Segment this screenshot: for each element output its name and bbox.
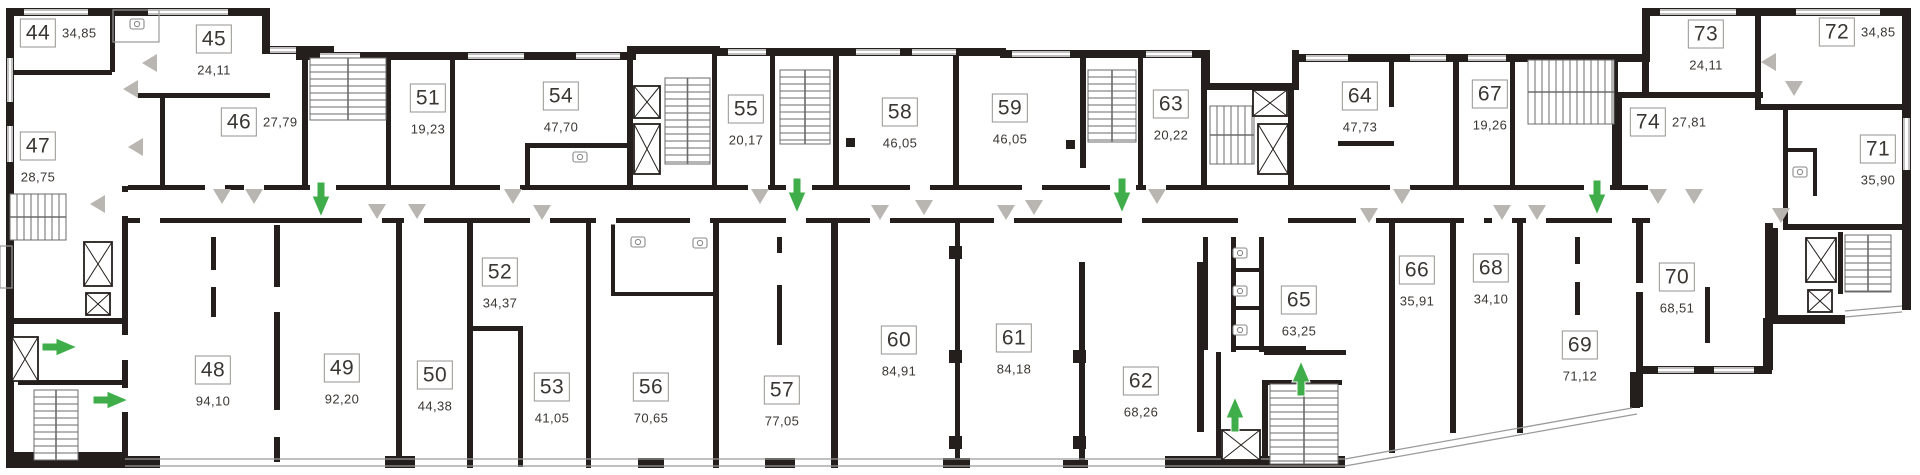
unit-number: 70 bbox=[1659, 263, 1695, 292]
unit-number: 66 bbox=[1399, 256, 1435, 285]
unit-area: 24,11 bbox=[1689, 58, 1723, 73]
unit-area: 92,20 bbox=[325, 392, 360, 407]
unit-area: 41,05 bbox=[535, 411, 570, 426]
unit-number: 59 bbox=[992, 94, 1028, 123]
unit-number: 44 bbox=[20, 19, 56, 48]
unit-number: 71 bbox=[1860, 135, 1896, 164]
unit-number: 55 bbox=[728, 95, 764, 124]
unit-area: 34,85 bbox=[1861, 25, 1896, 40]
unit-area: 71,12 bbox=[1563, 369, 1598, 384]
unit-number: 61 bbox=[996, 324, 1032, 353]
floor-plan: 4434,854524,114627,794728,754894,104992,… bbox=[0, 0, 1920, 475]
unit-number: 47 bbox=[20, 132, 56, 161]
unit-area: 35,90 bbox=[1861, 173, 1896, 188]
unit-number: 58 bbox=[882, 98, 918, 127]
unit-area: 46,05 bbox=[883, 136, 918, 151]
unit-number: 54 bbox=[543, 82, 579, 111]
unit-area: 24,11 bbox=[197, 63, 231, 78]
unit-number: 50 bbox=[417, 361, 453, 390]
unit-area: 84,18 bbox=[997, 362, 1032, 377]
unit-area: 34,10 bbox=[1474, 292, 1509, 307]
unit-area: 19,23 bbox=[411, 122, 446, 137]
unit-area: 68,26 bbox=[1124, 405, 1159, 420]
unit-number: 64 bbox=[1342, 82, 1378, 111]
unit-number: 46 bbox=[221, 108, 257, 137]
unit-number: 73 bbox=[1688, 20, 1724, 49]
unit-number: 60 bbox=[881, 326, 917, 355]
unit-area: 27,79 bbox=[263, 115, 298, 130]
unit-number: 51 bbox=[410, 84, 446, 113]
unit-area: 68,51 bbox=[1660, 301, 1695, 316]
unit-area: 44,38 bbox=[418, 399, 453, 414]
unit-area: 47,73 bbox=[1343, 120, 1378, 135]
unit-area: 63,25 bbox=[1282, 324, 1317, 339]
unit-number: 48 bbox=[195, 356, 231, 385]
unit-area: 27,81 bbox=[1672, 115, 1707, 130]
unit-area: 47,70 bbox=[544, 120, 579, 135]
unit-area: 35,91 bbox=[1400, 294, 1435, 309]
unit-area: 28,75 bbox=[21, 170, 56, 185]
unit-area: 20,17 bbox=[729, 133, 764, 148]
unit-labels-layer: 4434,854524,114627,794728,754894,104992,… bbox=[0, 0, 1920, 475]
unit-number: 65 bbox=[1281, 286, 1317, 315]
unit-area: 46,05 bbox=[993, 132, 1028, 147]
unit-number: 56 bbox=[633, 373, 669, 402]
unit-number: 63 bbox=[1153, 90, 1189, 119]
unit-number: 72 bbox=[1819, 18, 1855, 47]
unit-number: 57 bbox=[764, 376, 800, 405]
unit-number: 52 bbox=[482, 258, 518, 287]
unit-number: 67 bbox=[1472, 80, 1508, 109]
unit-area: 70,65 bbox=[634, 411, 669, 426]
unit-area: 77,05 bbox=[765, 414, 800, 429]
unit-number: 49 bbox=[324, 354, 360, 383]
unit-number: 68 bbox=[1473, 254, 1509, 283]
unit-area: 19,26 bbox=[1473, 118, 1508, 133]
unit-number: 74 bbox=[1630, 108, 1666, 137]
unit-number: 45 bbox=[196, 25, 232, 54]
unit-number: 53 bbox=[534, 373, 570, 402]
unit-number: 69 bbox=[1562, 331, 1598, 360]
unit-area: 34,37 bbox=[483, 296, 518, 311]
unit-area: 20,22 bbox=[1154, 128, 1189, 143]
unit-area: 94,10 bbox=[196, 394, 231, 409]
unit-area: 84,91 bbox=[882, 364, 917, 379]
unit-area: 34,85 bbox=[62, 26, 97, 41]
unit-number: 62 bbox=[1123, 367, 1159, 396]
